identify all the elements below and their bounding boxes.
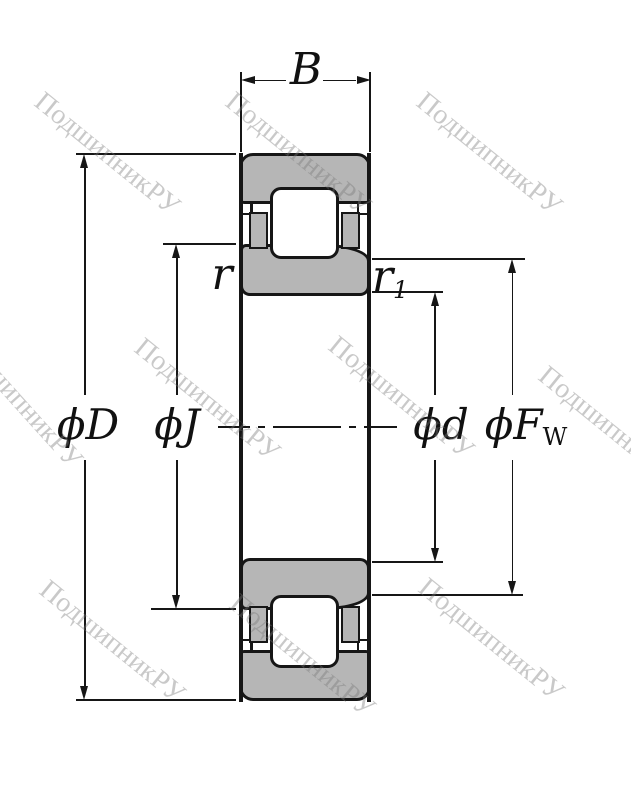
extension-line-outer-diameter-top bbox=[76, 153, 236, 155]
extension-line-width-right bbox=[369, 72, 371, 152]
centerline bbox=[258, 426, 265, 428]
dim-label-pitch-diameter: ϕJ bbox=[145, 404, 209, 446]
dimension-line-outer-upper bbox=[84, 166, 86, 395]
dimension-line-pitch-lower bbox=[176, 460, 178, 597]
extension-line-outer-diameter-bottom bbox=[76, 699, 236, 701]
dimension-line-bore-lower bbox=[434, 460, 436, 550]
side-face-line-left bbox=[239, 153, 244, 702]
dim-label-width: B bbox=[280, 48, 332, 92]
dimension-arrow-down-icon bbox=[431, 548, 439, 562]
dimension-line-bore-upper bbox=[434, 304, 436, 395]
watermark: ПодшипникРУ bbox=[0, 322, 89, 475]
cage-bar-bottom-right bbox=[341, 606, 360, 643]
cage-bar-top-right bbox=[341, 212, 360, 249]
dimension-arrow-up-icon bbox=[80, 154, 88, 168]
centerline bbox=[273, 426, 341, 428]
roller-top-section bbox=[270, 187, 340, 260]
watermark: ПодшипникРУ bbox=[410, 86, 568, 223]
extension-line-pitch-bottom bbox=[151, 608, 236, 610]
dimension-line-outer-lower bbox=[84, 460, 86, 688]
dimension-arrow-up-icon bbox=[508, 259, 516, 273]
dimension-line-raceway-upper bbox=[512, 271, 514, 395]
dim-label-bore-diameter: ϕd bbox=[409, 404, 473, 446]
dim-label-raceway-diameter: ϕFW bbox=[482, 404, 570, 446]
cage-bar-top-left bbox=[249, 212, 268, 249]
bearing-drawing: B ϕD ϕJ ϕd ϕFW r r1 bbox=[0, 0, 631, 792]
dimension-line-pitch-upper bbox=[176, 256, 178, 395]
dim-label-outer-diameter: ϕD bbox=[54, 404, 122, 446]
dim-label-chamfer-r1: r1 bbox=[372, 255, 414, 299]
centerline bbox=[218, 426, 250, 428]
dimension-arrow-down-icon bbox=[80, 686, 88, 700]
dimension-line-raceway-lower bbox=[512, 460, 514, 583]
side-face-line-right bbox=[367, 153, 372, 702]
dimension-arrow-up-icon bbox=[172, 244, 180, 258]
dimension-arrow-left-icon bbox=[241, 76, 255, 84]
cage-bar-bottom-left bbox=[249, 606, 268, 643]
roller-bottom-section bbox=[270, 595, 340, 668]
watermark: ПодшипникРУ bbox=[128, 332, 286, 469]
dim-label-chamfer-r: r bbox=[206, 253, 238, 297]
dimension-arrow-down-icon bbox=[508, 581, 516, 595]
watermark: ПодшипникРУ bbox=[33, 574, 191, 711]
dimension-arrow-up-icon bbox=[431, 292, 439, 306]
extension-line-width-left bbox=[240, 72, 242, 152]
dimension-arrow-right-icon bbox=[357, 76, 371, 84]
extension-line-raceway-bottom bbox=[372, 594, 523, 596]
dimension-arrow-down-icon bbox=[172, 595, 180, 609]
centerline bbox=[349, 426, 356, 428]
watermark: ПодшипникРУ bbox=[412, 572, 570, 709]
